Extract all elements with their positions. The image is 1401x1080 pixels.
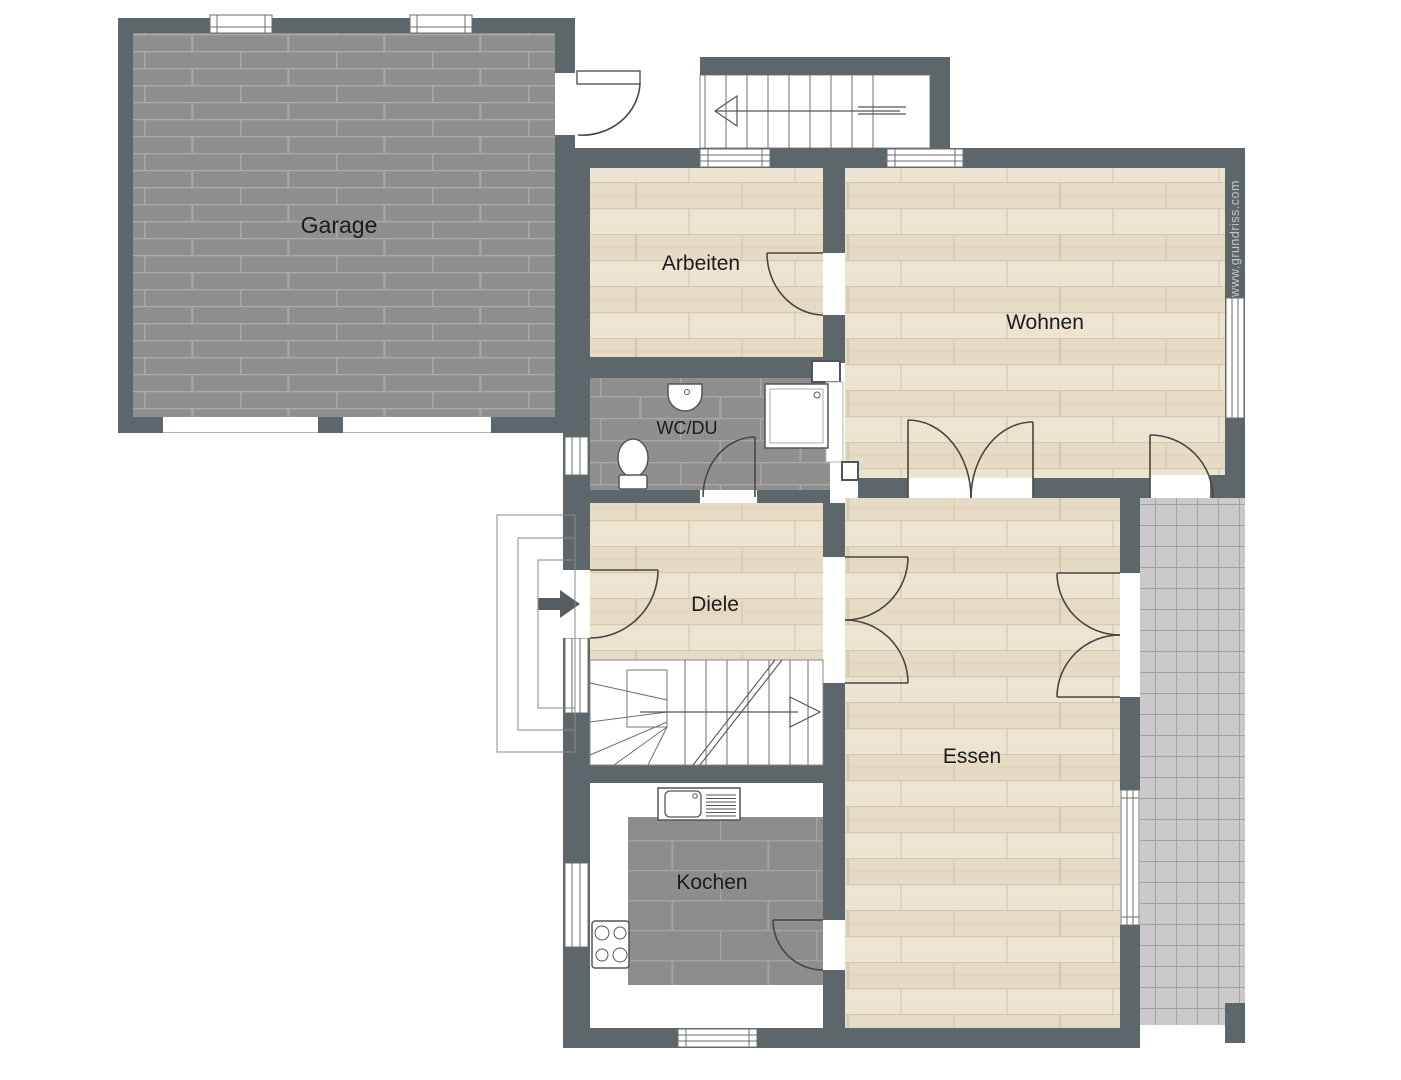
garage-wall-west xyxy=(118,18,133,433)
wall-stairs-kochen xyxy=(563,765,823,783)
door-arc xyxy=(578,84,640,135)
wohnen-window-east xyxy=(1226,298,1244,418)
wall-wc-diele-right xyxy=(757,490,830,503)
garage-wall-south-left xyxy=(118,417,163,433)
entrance-sidelight-window xyxy=(565,638,588,713)
wall-essen-terrace-upper xyxy=(1120,498,1140,573)
essen-window-east xyxy=(1121,790,1139,925)
stair-enclosure-wall-east xyxy=(930,57,950,148)
garage-wall-south-mid xyxy=(318,417,343,433)
kochen-window-west xyxy=(565,863,588,947)
room-label-arbeiten: Arbeiten xyxy=(662,252,740,275)
kochen-window-south xyxy=(678,1029,757,1047)
door-leaf xyxy=(577,71,640,84)
room-label-wc-du: WC/DU xyxy=(657,418,718,438)
diele-floor xyxy=(590,503,823,660)
floor-plan-page: Garage Arbeiten Wohnen WC/DU Diele Essen… xyxy=(0,0,1401,1080)
stair-enclosure-wall-north xyxy=(700,57,950,75)
room-label-essen: Essen xyxy=(943,745,1001,768)
watermark-text: www.grundriss.com xyxy=(1228,180,1242,298)
room-label-diele: Diele xyxy=(691,593,739,616)
wall-arbeiten-wohnen-lower xyxy=(823,315,845,363)
garage-wall-east-upper xyxy=(555,18,575,73)
wc-sink-icon xyxy=(668,384,702,411)
terrace-corner-pier xyxy=(1225,1003,1245,1043)
garage-door-opening-right xyxy=(343,417,491,433)
wall-terrace-north-corner xyxy=(1210,475,1245,498)
floor-plan-svg: Garage Arbeiten Wohnen WC/DU Diele Essen… xyxy=(0,0,1401,1080)
garage-exit-door xyxy=(555,71,640,135)
shaft-box-1 xyxy=(812,361,840,382)
wall-diele-essen-upper xyxy=(823,503,845,557)
wohnen-window-north xyxy=(887,149,963,167)
wall-arbeiten-wohnen-upper xyxy=(823,148,845,253)
shaft-box-2 xyxy=(842,462,858,480)
wall-wc-diele-left xyxy=(575,490,700,503)
wall-essen-terrace-lower xyxy=(1120,925,1140,1028)
toilet-icon xyxy=(618,439,648,489)
wall-wohnen-essen-left xyxy=(858,478,908,498)
room-label-garage: Garage xyxy=(301,212,378,238)
wall-essen-terrace-mid xyxy=(1120,697,1140,790)
house-wall-south xyxy=(563,1028,1140,1048)
wall-kochen-essen-upper xyxy=(823,683,845,920)
garage-window-north-1 xyxy=(210,15,272,33)
wall-arbeiten-wc xyxy=(575,357,830,378)
arbeiten-window-north xyxy=(700,149,770,167)
wall-wohnen-essen-right xyxy=(1033,478,1150,498)
wall-kochen-essen-lower xyxy=(823,970,845,1028)
garage-door-opening-left xyxy=(163,417,318,433)
stove-icon xyxy=(592,921,629,968)
room-label-wohnen: Wohnen xyxy=(1006,311,1084,334)
terrace-floor xyxy=(1140,498,1245,1025)
garage-wall-north xyxy=(118,18,575,33)
outdoor-stairs xyxy=(700,57,950,148)
room-label-kochen: Kochen xyxy=(676,871,747,894)
garage-window-north-2 xyxy=(410,15,472,33)
wc-window-west xyxy=(565,437,588,475)
kitchen-sink-icon xyxy=(658,788,740,820)
indoor-stairs xyxy=(590,660,823,765)
shower-icon xyxy=(765,384,828,448)
